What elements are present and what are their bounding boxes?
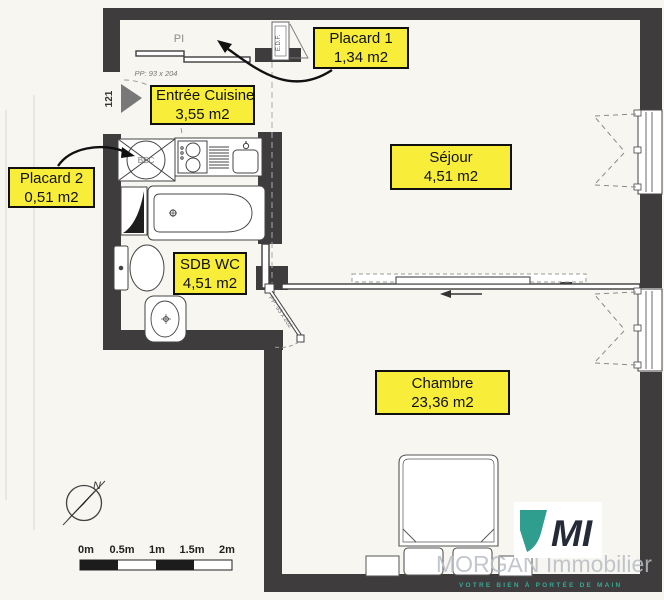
room-name: Entrée Cuisine bbox=[156, 86, 249, 105]
wall-sejour-chambre bbox=[282, 284, 640, 289]
room-area: 4,51 m2 bbox=[396, 167, 506, 186]
scale-bar: 0m 0.5m 1m 1.5m 2m bbox=[78, 544, 235, 570]
room-label-entree-cuisine: Entrée Cuisine 3,55 m2 bbox=[150, 85, 255, 125]
wall-right-2 bbox=[640, 192, 662, 288]
scale-tick-0: 0m bbox=[78, 544, 94, 556]
room-area: 3,55 m2 bbox=[156, 105, 249, 124]
kitchen bbox=[175, 138, 262, 176]
slide-direction-arrowhead bbox=[440, 290, 451, 298]
nightstand-left bbox=[366, 556, 399, 576]
window-chambre bbox=[594, 288, 662, 371]
brand-tagline: VOTRE BIEN À PORTÉE DE MAIN bbox=[459, 580, 622, 589]
room-name: SDB WC bbox=[179, 255, 241, 274]
floor-plan-page: PI PP: 93 x 204 121 E.D.F. BEC PP: 93 x … bbox=[0, 0, 664, 600]
room-area: 4,51 m2 bbox=[179, 274, 241, 293]
logo-initials: MI bbox=[551, 513, 593, 554]
burner-1 bbox=[186, 143, 200, 157]
edf-label: E.D.F. bbox=[276, 35, 282, 52]
room-name: Séjour bbox=[396, 148, 506, 167]
wall-chambre-left bbox=[264, 342, 282, 592]
sdb-door-dimension: PP: 93 x 202 bbox=[267, 295, 294, 330]
room-label-sdb-wc: SDB WC 4,51 m2 bbox=[173, 252, 247, 295]
scan-artifact-lines bbox=[6, 95, 34, 530]
door-number: 121 bbox=[104, 90, 115, 107]
wall-top bbox=[105, 8, 662, 20]
north-label: N bbox=[93, 480, 101, 492]
room-area: 1,34 m2 bbox=[319, 48, 403, 67]
toilet bbox=[114, 245, 164, 291]
bathtub bbox=[148, 186, 265, 240]
scale-tick-2: 1m bbox=[149, 544, 165, 556]
scale-tick-1: 0.5m bbox=[109, 544, 134, 556]
room-area: 0,51 m2 bbox=[14, 188, 89, 207]
entry-direction-arrow bbox=[121, 84, 142, 113]
room-label-placard-2: Placard 2 0,51 m2 bbox=[8, 167, 95, 208]
room-label-sejour: Séjour 4,51 m2 bbox=[390, 144, 512, 190]
bec-label: BEC bbox=[138, 156, 155, 165]
wall-right-1 bbox=[640, 8, 662, 112]
room-label-placard-1: Placard 1 1,34 m2 bbox=[313, 27, 409, 69]
room-name: Placard 2 bbox=[14, 169, 89, 188]
wall-left-top bbox=[103, 8, 120, 72]
scale-tick-4: 2m bbox=[219, 544, 235, 556]
floor-plan-drawing: PI PP: 93 x 204 121 E.D.F. BEC PP: 93 x … bbox=[0, 0, 664, 600]
pi-sliding-panel-1 bbox=[136, 51, 184, 56]
wall-sdb-thin bbox=[262, 244, 269, 288]
knob bbox=[181, 152, 183, 154]
window-sejour bbox=[594, 110, 662, 194]
room-name: Placard 1 bbox=[319, 29, 403, 48]
entry-door-dimension: PP: 93 x 204 bbox=[135, 69, 178, 78]
compass: N bbox=[63, 480, 105, 525]
scale-tick-3: 1.5m bbox=[179, 544, 204, 556]
kitchen-faucet bbox=[243, 143, 248, 148]
knob bbox=[181, 157, 183, 159]
wall-sdb-bottom bbox=[103, 330, 283, 350]
room-area: 23,36 m2 bbox=[381, 393, 504, 412]
kitchen-sink bbox=[233, 150, 258, 173]
room-label-chambre: Chambre 23,36 m2 bbox=[375, 370, 510, 415]
toilet-bowl bbox=[130, 245, 164, 291]
pi-label: PI bbox=[174, 33, 184, 45]
burner-2 bbox=[186, 158, 200, 172]
knob bbox=[181, 147, 183, 149]
sdb-door-swing bbox=[121, 187, 147, 235]
room-name: Chambre bbox=[381, 374, 504, 393]
washbasin bbox=[145, 296, 186, 342]
